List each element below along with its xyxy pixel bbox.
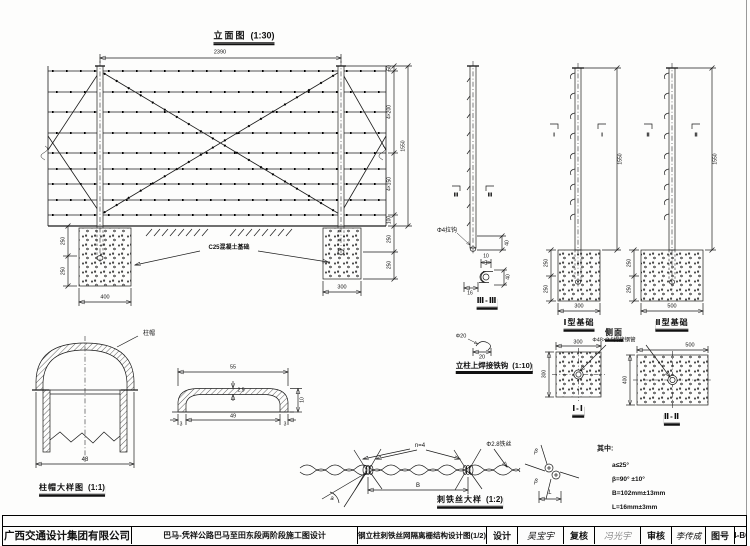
ground-hatch	[146, 229, 292, 236]
beta-label-2: β	[534, 479, 537, 485]
cap-callout: 柱帽	[143, 331, 155, 337]
notes-head: 其中:	[597, 446, 613, 453]
barbed-wire-title-text: 刺铁丝大样	[437, 495, 482, 504]
barbed-wire-scale: (1:2)	[486, 495, 503, 504]
dim-span: 2390	[214, 50, 226, 56]
wire-dia-callout: Φ2.8铁丝	[486, 442, 511, 448]
t2-height: 1550	[714, 153, 719, 164]
project-name: 巴马-凭祥公路巴马至田东段两阶段施工图设计	[131, 527, 357, 544]
weld-hook-dia: Φ20	[456, 334, 467, 340]
pipe-callout: Φ48×3.5焊接钢管	[592, 338, 635, 344]
note-line-4: L=16mm±3mm	[612, 505, 657, 512]
drawing-sheet: 立面图(1:30) 2390 50 4×200 4×150 100 1550 2…	[0, 0, 750, 546]
section-3-3-title: Ⅲ-Ⅲ	[477, 297, 498, 308]
t1-e1: 250	[545, 259, 550, 267]
dim-upper: 4×200	[388, 105, 393, 119]
post-section-view	[452, 61, 507, 292]
company-name: 广西交通设计集团有限公司	[3, 527, 131, 544]
wire-hooks	[665, 73, 670, 220]
design-signature: 吴宝宇	[517, 527, 563, 544]
note-line-2: β=90° ±10°	[612, 477, 645, 484]
section-mark-3-left: Ⅲ	[454, 194, 459, 199]
type2-title: Ⅱ型基础	[655, 319, 688, 330]
cp-inner: 49	[230, 414, 236, 420]
cap-detail-view	[32, 336, 138, 468]
dim-foot-w-right: 300	[337, 285, 346, 291]
cp-side-l: 3	[180, 423, 183, 428]
cap-title-text: 柱帽大样图	[39, 483, 84, 492]
dim-l-embed2: 250	[62, 267, 67, 275]
cp-side-r: 3	[284, 423, 287, 428]
type1-title: Ⅰ型基础	[564, 319, 595, 330]
note-line-3: B=102mm±13mm	[612, 491, 665, 498]
t1-height: 1550	[619, 153, 624, 164]
type1-foundation-view	[546, 63, 621, 315]
section-1-1-title: Ⅰ-Ⅰ	[572, 405, 584, 416]
dim-total: 1550	[402, 140, 407, 151]
dim-l-embed1: 250	[62, 237, 67, 245]
type2-foundation-view	[629, 63, 716, 315]
footing-material-label: C25混凝土基础	[208, 245, 249, 251]
section-1-1	[545, 342, 605, 401]
cap-title: 柱帽大样图(1:1)	[39, 484, 105, 495]
t2-e2: 250	[628, 285, 633, 293]
barb-count-callout: n=4	[415, 443, 425, 449]
title-block: 广西交通设计集团有限公司 巴马-凭祥公路巴马至田东段两阶段施工图设计 钢立柱刺铁…	[2, 515, 747, 546]
dim-hook-right: 40	[507, 274, 512, 280]
t2-mark-right: Ⅱ	[694, 134, 697, 139]
cp-h: 10	[301, 397, 306, 403]
barb-angle-label: a	[330, 496, 333, 502]
break-mark-left	[41, 146, 48, 160]
title-block-strip	[3, 516, 746, 527]
dim-lower: 4×150	[388, 177, 393, 191]
t1-mark-right: Ⅰ	[601, 134, 603, 139]
weld-hook-scale: (1:10)	[512, 361, 532, 370]
s1-h: 300	[543, 370, 548, 378]
elevation-scale: (1:30)	[251, 30, 275, 40]
weld-hook-w: 20	[479, 355, 485, 361]
t2-mark-left: Ⅱ	[646, 134, 649, 139]
section-2-2	[626, 346, 712, 409]
cad-linework	[0, 0, 750, 515]
cap-scale: (1:1)	[88, 483, 105, 492]
dim-hook-left: 16	[467, 292, 473, 297]
t1-mark-left: Ⅰ	[553, 134, 555, 139]
barb-length-dim: L	[548, 490, 551, 496]
barbed-wire-title: 刺铁丝大样(1:2)	[437, 496, 503, 507]
weld-hook-title-text: 立柱上焊接铁钩	[456, 361, 509, 370]
dim-bottom: 100	[388, 216, 393, 224]
dim-r-embed1: 250	[388, 235, 393, 243]
design-label: 设计	[486, 527, 517, 544]
wire-hook-detail	[464, 259, 507, 292]
barb-cross-detail	[525, 445, 579, 503]
wire-hooks	[571, 73, 576, 220]
dim-post-embed: 40	[506, 240, 511, 246]
dim-top: 50	[388, 65, 393, 71]
s2-w: 500	[685, 343, 694, 349]
t2-width: 500	[667, 304, 676, 310]
audit-signature: 李传成	[671, 527, 705, 544]
footing-right	[323, 228, 361, 279]
barb-spacing-dim: B	[416, 483, 420, 489]
weld-hook-title: 立柱上焊接铁钩(1:10)	[456, 362, 533, 372]
footing-left	[79, 228, 131, 286]
dim-hook-top: 10	[483, 255, 489, 260]
weld-ticks	[467, 78, 470, 226]
dim-foot-w-left: 400	[100, 295, 109, 301]
elevation-title-text: 立面图	[213, 30, 246, 40]
t1-width: 300	[574, 304, 583, 310]
drawing-title: 钢立柱刺铁丝网隔离栅结构设计图(1/2)	[357, 527, 486, 544]
section-mark-3-right: Ⅲ	[488, 194, 493, 199]
s2-h: 400	[624, 376, 629, 384]
beta-label-1: β	[534, 449, 537, 455]
elevation-title: 立面图(1:30)	[213, 31, 274, 43]
section-2-2-title: Ⅱ-Ⅱ	[664, 413, 680, 424]
number-label: 图号	[705, 527, 734, 544]
sheet-right-border	[746, 0, 747, 515]
cp-wall: 2.5	[238, 389, 245, 394]
t1-e2: 250	[545, 285, 550, 293]
cap-w: 48	[82, 457, 89, 463]
dim-r-embed2: 250	[388, 261, 393, 269]
drawing-number: T-4-BG1	[734, 527, 746, 544]
note-line-1: a≤25°	[612, 463, 629, 470]
cp-outer: 55	[230, 365, 236, 371]
hook-callout: Φ4拉钩	[437, 228, 457, 234]
check-label: 复核	[563, 527, 594, 544]
check-signature: 冯光宇	[594, 527, 640, 544]
audit-label: 审核	[640, 527, 671, 544]
t2-e1: 250	[628, 259, 633, 267]
elevation-view	[41, 54, 412, 306]
s1-w: 300	[573, 340, 582, 346]
